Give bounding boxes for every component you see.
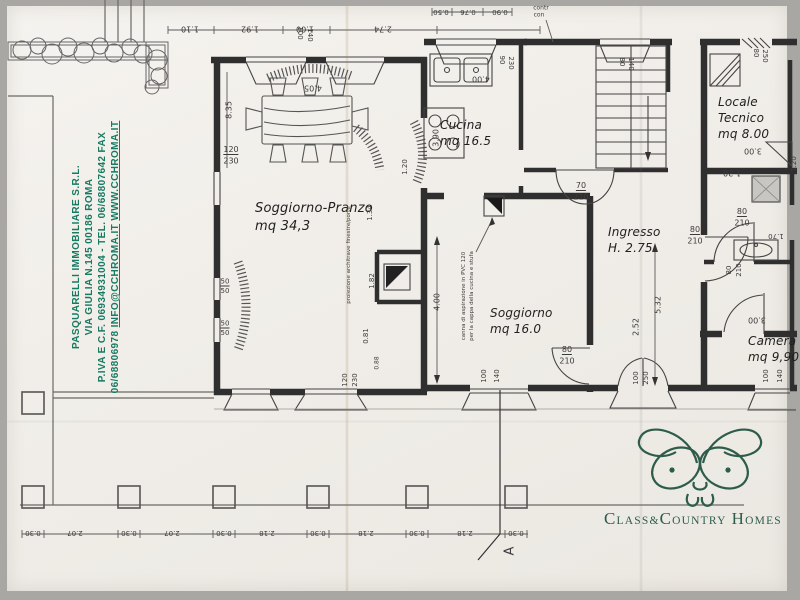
dimension-label: 2.18 <box>457 529 473 537</box>
room-name: Camera <box>748 333 799 349</box>
dimension-label: 50 <box>221 320 230 329</box>
planter-bushes <box>8 38 168 94</box>
dimension-label: 0.30 <box>409 529 425 537</box>
room-name: Locale Tecnico <box>718 94 800 126</box>
dimension-label: 250 <box>761 49 769 62</box>
dimension-label: 140 <box>306 28 314 41</box>
dimension-label: 5.32 <box>654 296 663 314</box>
dimension-label: 0.30 <box>216 529 232 537</box>
dimension-label: 140 <box>776 369 784 382</box>
logo-word: omes <box>745 515 782 527</box>
dimension-label: 8.35 <box>225 101 234 119</box>
dimension-label: 4.05 <box>304 84 322 93</box>
room-label-soggiorno-pranzo: Soggiorno-Pranzo mq 34,3 <box>255 200 373 235</box>
dimension-label: 140 <box>493 369 501 382</box>
dimension-label: 0.90 <box>492 8 508 16</box>
dimension-label: 100 <box>480 369 488 382</box>
dimension-label: 50 <box>221 278 230 287</box>
room-area: mq 16.5 <box>440 133 491 149</box>
scanned-floor-plan: Pasquarelli Immobiliare S.R.L. Via Giuli… <box>0 0 800 600</box>
logo-letter: H <box>732 509 745 528</box>
logo-butterfly-icon <box>639 430 761 506</box>
dimension-label: proiezione architrave finestre/porte <box>346 206 352 303</box>
dimension-label: 2.07 <box>67 529 83 537</box>
agency-contact-text: Pasquarelli Immobiliare S.R.L. Via Giuli… <box>70 98 122 416</box>
dimension-label: 0.88 <box>374 356 381 369</box>
logo-ampersand: & <box>649 515 659 527</box>
dimension-label: 100 <box>632 371 640 384</box>
dimension-label: 0.30 <box>508 529 524 537</box>
logo-letter: C <box>604 509 617 528</box>
dimension-label: 0.30 <box>25 529 41 537</box>
dimension-label: 50 <box>221 329 230 337</box>
dimension-label: 140 <box>627 57 635 70</box>
logo-word: lass <box>617 515 650 527</box>
dimension-label: 1.20 <box>790 156 798 172</box>
dimension-label: 1.82 <box>368 273 376 289</box>
dimension-label: 2.18 <box>259 529 275 537</box>
dimension-label: 2.52 <box>632 318 641 336</box>
dimension-label: 2.18 <box>358 529 374 537</box>
aspiration-duct <box>484 196 504 216</box>
dimension-label: 1.20 <box>723 169 741 178</box>
room-area: mq 34,3 <box>255 218 373 236</box>
dimension-label: 80 <box>752 49 760 58</box>
dimension-label: 1.70 <box>768 232 784 240</box>
dimension-label: 250 <box>642 371 650 384</box>
dimension-label: 3.00 <box>748 316 766 325</box>
room-label-ingresso: Ingresso H. 2.75 <box>608 224 661 256</box>
room-name: Soggiorno-Pranzo <box>255 200 373 218</box>
dimension-label: 1.10 <box>181 25 199 34</box>
dimension-label: 80 <box>690 225 700 235</box>
dimension-label: 3.90 <box>432 129 441 147</box>
room-area: mq 9,90 <box>748 349 799 365</box>
agency-email: info@cchroma.it <box>110 224 121 328</box>
dimension-label: contr <box>533 5 549 12</box>
room-label-camera: Camera mq 9,90 <box>748 333 799 365</box>
logo-word: ountry <box>672 515 726 527</box>
room-name: Cucina <box>440 117 491 133</box>
dimension-label: 1.20 <box>401 159 409 175</box>
dimension-label: 100 <box>296 26 304 39</box>
dimension-label: 230 <box>351 373 359 386</box>
section-marker-line <box>478 390 500 560</box>
dimension-label: 210 <box>687 237 702 246</box>
dimension-label: 70 <box>576 181 586 191</box>
dimension-label: 0.50 <box>433 8 449 16</box>
dimension-label: 100 <box>762 369 770 382</box>
room-label-locale-tecnico: Locale Tecnico mq 8.00 <box>718 94 800 143</box>
dimension-label: 2.74 <box>374 25 392 34</box>
dimension-label: 4.00 <box>433 293 442 311</box>
dimension-label: 210 <box>559 357 574 366</box>
room-label-cucina: Cucina mq 16.5 <box>440 117 491 149</box>
dimension-label: 0.76 <box>460 8 476 16</box>
dimension-label: canna di aspirazione in PVC 120 <box>461 252 467 340</box>
agency-fax-web: 06/68806978 info@cchroma.it www.cchroma.… <box>109 98 122 416</box>
dimension-label: 1.92 <box>241 25 259 34</box>
dimension-label: 210 <box>734 219 749 228</box>
dimension-label: 0.81 <box>362 328 370 344</box>
dimension-label: 120 <box>223 145 238 155</box>
dimension-label: 80 <box>725 266 733 275</box>
dimension-label: 230 <box>507 56 515 69</box>
dimension-label: con <box>534 12 545 19</box>
dimension-label: 50 <box>221 287 230 295</box>
logo-letter: C <box>660 509 673 528</box>
agency-name: Pasquarelli Immobiliare S.R.L. <box>70 98 83 416</box>
dimension-label: per la cappa della cucina e stufa <box>469 251 475 341</box>
fireplace <box>384 264 410 290</box>
agency-vat-phone: P.Iva e C.F. 06934931004 - Tel. 06/68807… <box>96 98 109 416</box>
dimension-label: 80 <box>737 207 747 217</box>
room-area: mq 8.00 <box>718 126 800 142</box>
dimension-label: 4.00 <box>472 75 490 84</box>
agency-website: www.cchroma.it <box>110 121 121 221</box>
dimension-label: A <box>503 547 518 556</box>
dimension-label: 3.00 <box>744 147 762 156</box>
dimension-label: 0.30 <box>310 529 326 537</box>
shower-tray <box>752 176 780 202</box>
dimension-label: 210 <box>573 193 588 202</box>
dimension-label: 210 <box>735 263 743 276</box>
dimension-label: 0.30 <box>121 529 137 537</box>
agency-address: Via Giulia N.145 00186 Roma <box>83 98 96 416</box>
agency-fax-number: 06/68806978 <box>110 331 121 394</box>
dimension-label: 80 <box>618 58 626 67</box>
dimension-label: 230 <box>223 157 238 166</box>
room-name: Soggiorno <box>490 305 553 321</box>
dimension-label: 90 <box>498 56 506 65</box>
room-area: mq 16.0 <box>490 321 553 337</box>
room-name: Ingresso <box>608 224 661 240</box>
room-label-soggiorno: Soggiorno mq 16.0 <box>490 305 553 337</box>
dimension-label: 120 <box>341 373 349 386</box>
room-height: H. 2.75 <box>608 240 661 256</box>
logo-wordmark: Class&CountryHomes <box>604 509 800 529</box>
bathroom-sink <box>734 240 778 260</box>
dimension-label: 1.34 <box>366 205 374 221</box>
dimension-label: 2.07 <box>164 529 180 537</box>
dimension-label: 80 <box>562 345 572 355</box>
